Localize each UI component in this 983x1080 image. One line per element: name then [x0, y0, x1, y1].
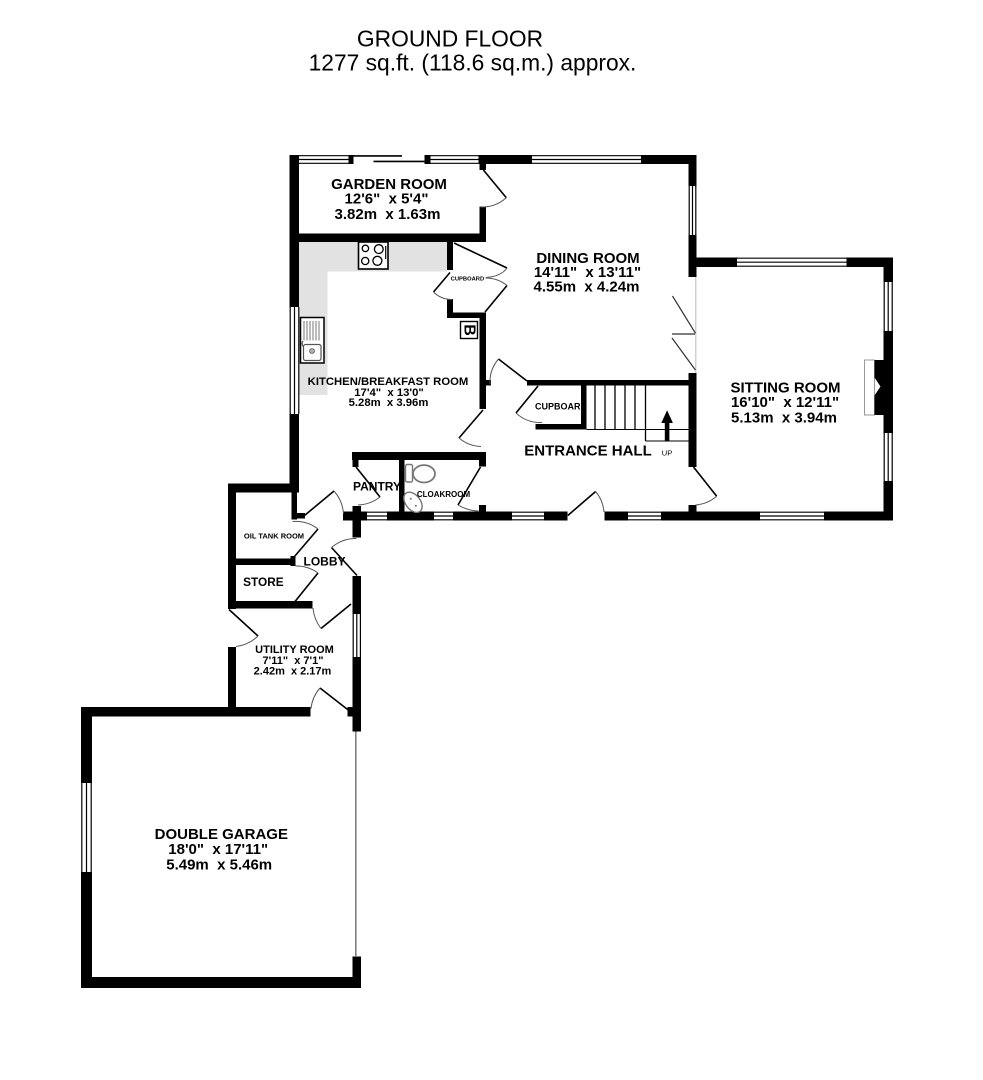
svg-text:1277 sq.ft. (118.6 sq.m.) appr: 1277 sq.ft. (118.6 sq.m.) approx. [309, 50, 637, 76]
svg-text:UTILITY ROOM: UTILITY ROOM [255, 644, 334, 656]
svg-text:STORE: STORE [243, 575, 284, 589]
svg-text:OIL TANK ROOM: OIL TANK ROOM [244, 532, 304, 541]
svg-text:CLOAKROOM: CLOAKROOM [417, 490, 471, 499]
svg-text:5.28m x 3.96m: 5.28m x 3.96m [349, 397, 429, 409]
svg-text:PANTRY: PANTRY [353, 480, 401, 494]
svg-text:18'0" x 17'11": 18'0" x 17'11" [168, 841, 268, 858]
svg-text:5.13m x 3.94m: 5.13m x 3.94m [731, 409, 837, 426]
svg-text:GROUND FLOOR: GROUND FLOOR [357, 26, 543, 52]
svg-text:LOBBY: LOBBY [304, 555, 346, 569]
svg-text:12'6" x 5'4": 12'6" x 5'4" [345, 191, 429, 208]
svg-text:3.82m x 1.63m: 3.82m x 1.63m [335, 206, 441, 223]
svg-text:CUPBOARD: CUPBOARD [535, 402, 588, 412]
svg-text:4.55m x 4.24m: 4.55m x 4.24m [534, 279, 640, 296]
svg-text:ENTRANCE HALL: ENTRANCE HALL [524, 443, 652, 460]
svg-text:B: B [461, 324, 478, 336]
svg-text:UP: UP [662, 449, 672, 458]
svg-text:2.42m x 2.17m: 2.42m x 2.17m [254, 666, 332, 678]
svg-text:CUPBOARD: CUPBOARD [451, 276, 485, 282]
svg-text:5.49m x 5.46m: 5.49m x 5.46m [166, 857, 272, 874]
